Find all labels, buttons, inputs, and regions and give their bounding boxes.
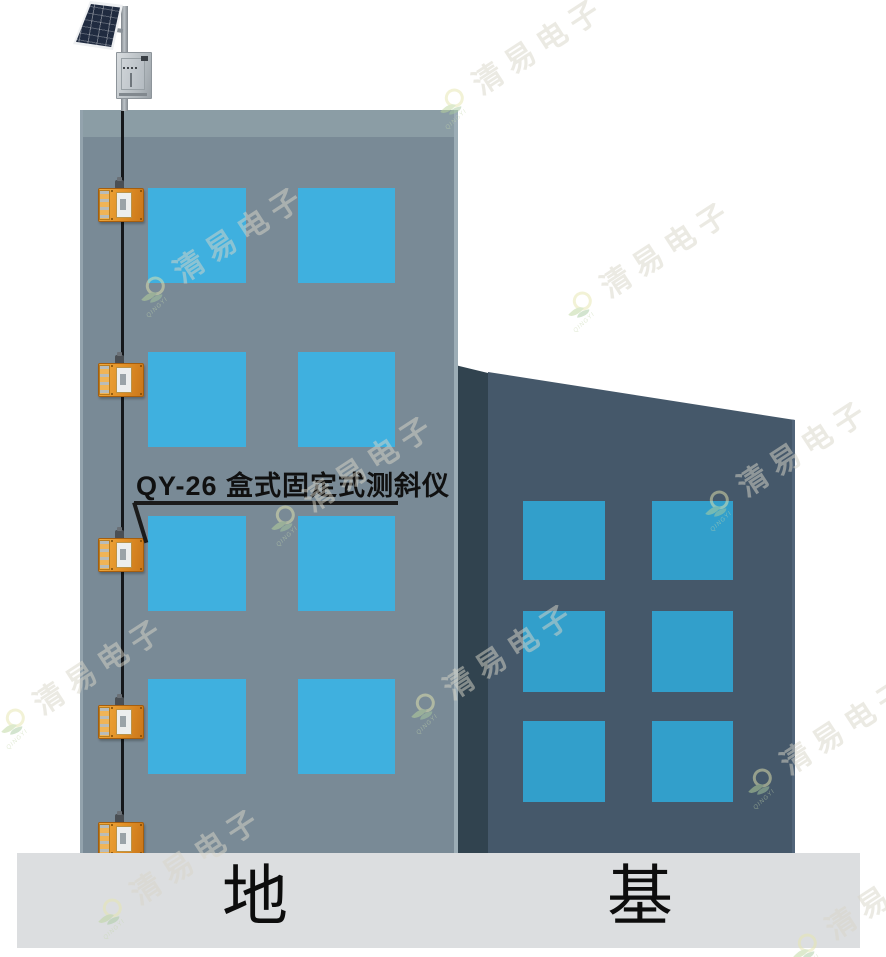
ground-label-right: 基 bbox=[607, 859, 673, 937]
rear-window bbox=[523, 721, 605, 802]
rear-window bbox=[652, 501, 733, 580]
inclinometer-sensor bbox=[98, 188, 144, 222]
sensor-front-panel bbox=[116, 367, 132, 393]
main-window bbox=[148, 352, 246, 447]
sensor-front-panel bbox=[116, 826, 132, 852]
sensor-hinge-flange bbox=[99, 365, 110, 395]
main-building-right-edge bbox=[454, 110, 458, 853]
control-box bbox=[116, 52, 152, 99]
sensor-callout-label: QY-26 盒式固定式测斜仪 bbox=[136, 464, 450, 503]
callout-pointer-line bbox=[134, 501, 398, 505]
main-window bbox=[148, 679, 246, 774]
control-box-door bbox=[121, 58, 145, 90]
diagram-canvas: QY-26 盒式固定式测斜仪 地 基 QINGYI 清易电子 QINGYI 清易… bbox=[0, 0, 886, 957]
sensor-front-panel bbox=[116, 709, 132, 735]
main-window bbox=[298, 352, 395, 447]
main-window bbox=[298, 188, 395, 283]
inclinometer-sensor bbox=[98, 363, 144, 397]
rear-building-side-face bbox=[455, 363, 488, 853]
brand-watermark: QINGYI 清易电子 bbox=[553, 186, 744, 334]
qingyi-leaf-logo-icon: QINGYI bbox=[560, 287, 606, 335]
control-box-base bbox=[119, 93, 147, 96]
main-building-roof-band bbox=[80, 110, 458, 137]
sensor-hinge-flange bbox=[99, 540, 110, 570]
rear-window bbox=[523, 501, 605, 580]
solar-panel-cells bbox=[76, 4, 120, 47]
main-building-left-edge bbox=[80, 110, 83, 853]
qingyi-leaf-logo-icon: QINGYI bbox=[0, 704, 39, 752]
main-window bbox=[148, 516, 246, 611]
sensor-hinge-flange bbox=[99, 190, 110, 220]
control-box-label bbox=[141, 56, 148, 61]
ground-label-left: 地 bbox=[222, 859, 288, 937]
sensor-front-panel bbox=[116, 542, 132, 568]
sensor-front-panel bbox=[116, 192, 132, 218]
rear-building-right-edge bbox=[792, 418, 795, 853]
ground-foundation: 地 基 bbox=[17, 853, 860, 948]
control-box-vents bbox=[123, 67, 139, 69]
inclinometer-sensor bbox=[98, 822, 144, 856]
control-box-handle bbox=[130, 73, 132, 87]
sensor-hinge-flange bbox=[99, 707, 110, 737]
rear-window bbox=[652, 611, 733, 692]
rear-window bbox=[652, 721, 733, 802]
rear-window bbox=[523, 611, 605, 692]
sensor-hinge-flange bbox=[99, 824, 110, 854]
main-window bbox=[298, 516, 395, 611]
solar-panel-icon bbox=[73, 1, 123, 50]
inclinometer-sensor bbox=[98, 705, 144, 739]
main-window bbox=[298, 679, 395, 774]
main-window bbox=[148, 188, 246, 283]
inclinometer-sensor bbox=[98, 538, 144, 572]
